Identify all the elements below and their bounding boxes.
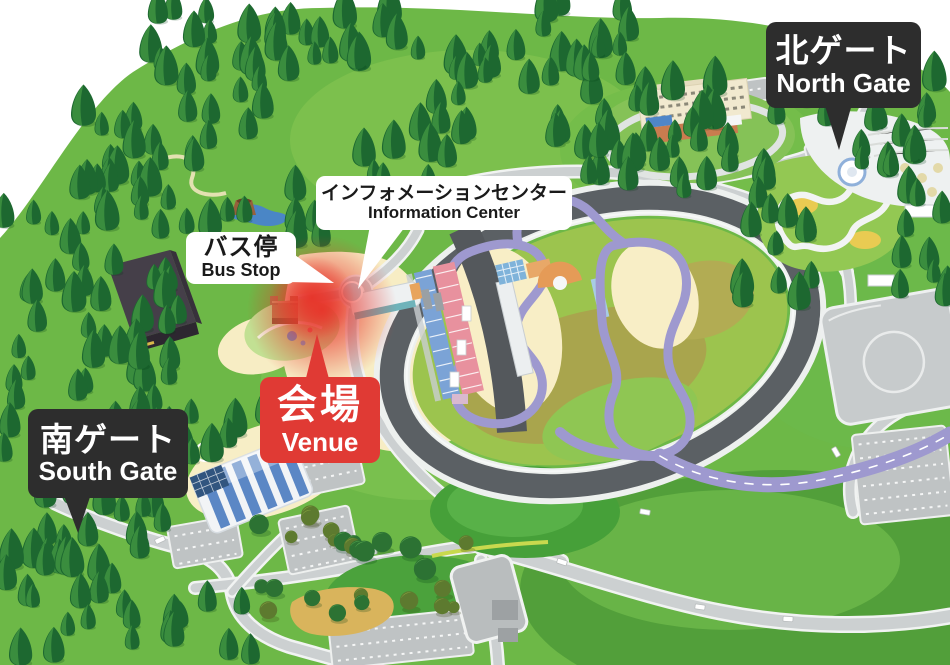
north-gate-name-en: North Gate <box>766 69 921 97</box>
driving-plaza-south <box>819 288 950 427</box>
label-south-gate: 南ゲート South Gate <box>28 409 188 498</box>
venue-name-en: Venue <box>260 428 380 456</box>
label-bus-stop: バス停 Bus Stop <box>186 232 296 284</box>
south-gate-name-jp: 南ゲート <box>28 422 188 458</box>
bus-stop-name-en: Bus Stop <box>186 261 296 280</box>
south-gate-name-en: South Gate <box>28 457 188 485</box>
information-center-name-jp: インフォメーションセンター <box>316 184 572 205</box>
label-venue: 会場 Venue <box>260 377 380 463</box>
north-gate-name-jp: 北ゲート <box>766 33 921 69</box>
label-north-gate: 北ゲート North Gate <box>766 22 921 108</box>
information-center-name-en: Information Center <box>316 204 572 222</box>
venue-name-jp: 会場 <box>260 384 380 427</box>
venue-access-map: 北ゲート North Gate 南ゲート South Gate インフォメーショ… <box>0 0 950 665</box>
bus-stop-name-jp: バス停 <box>186 235 296 261</box>
label-information-center: インフォメーションセンター Information Center <box>316 176 572 230</box>
